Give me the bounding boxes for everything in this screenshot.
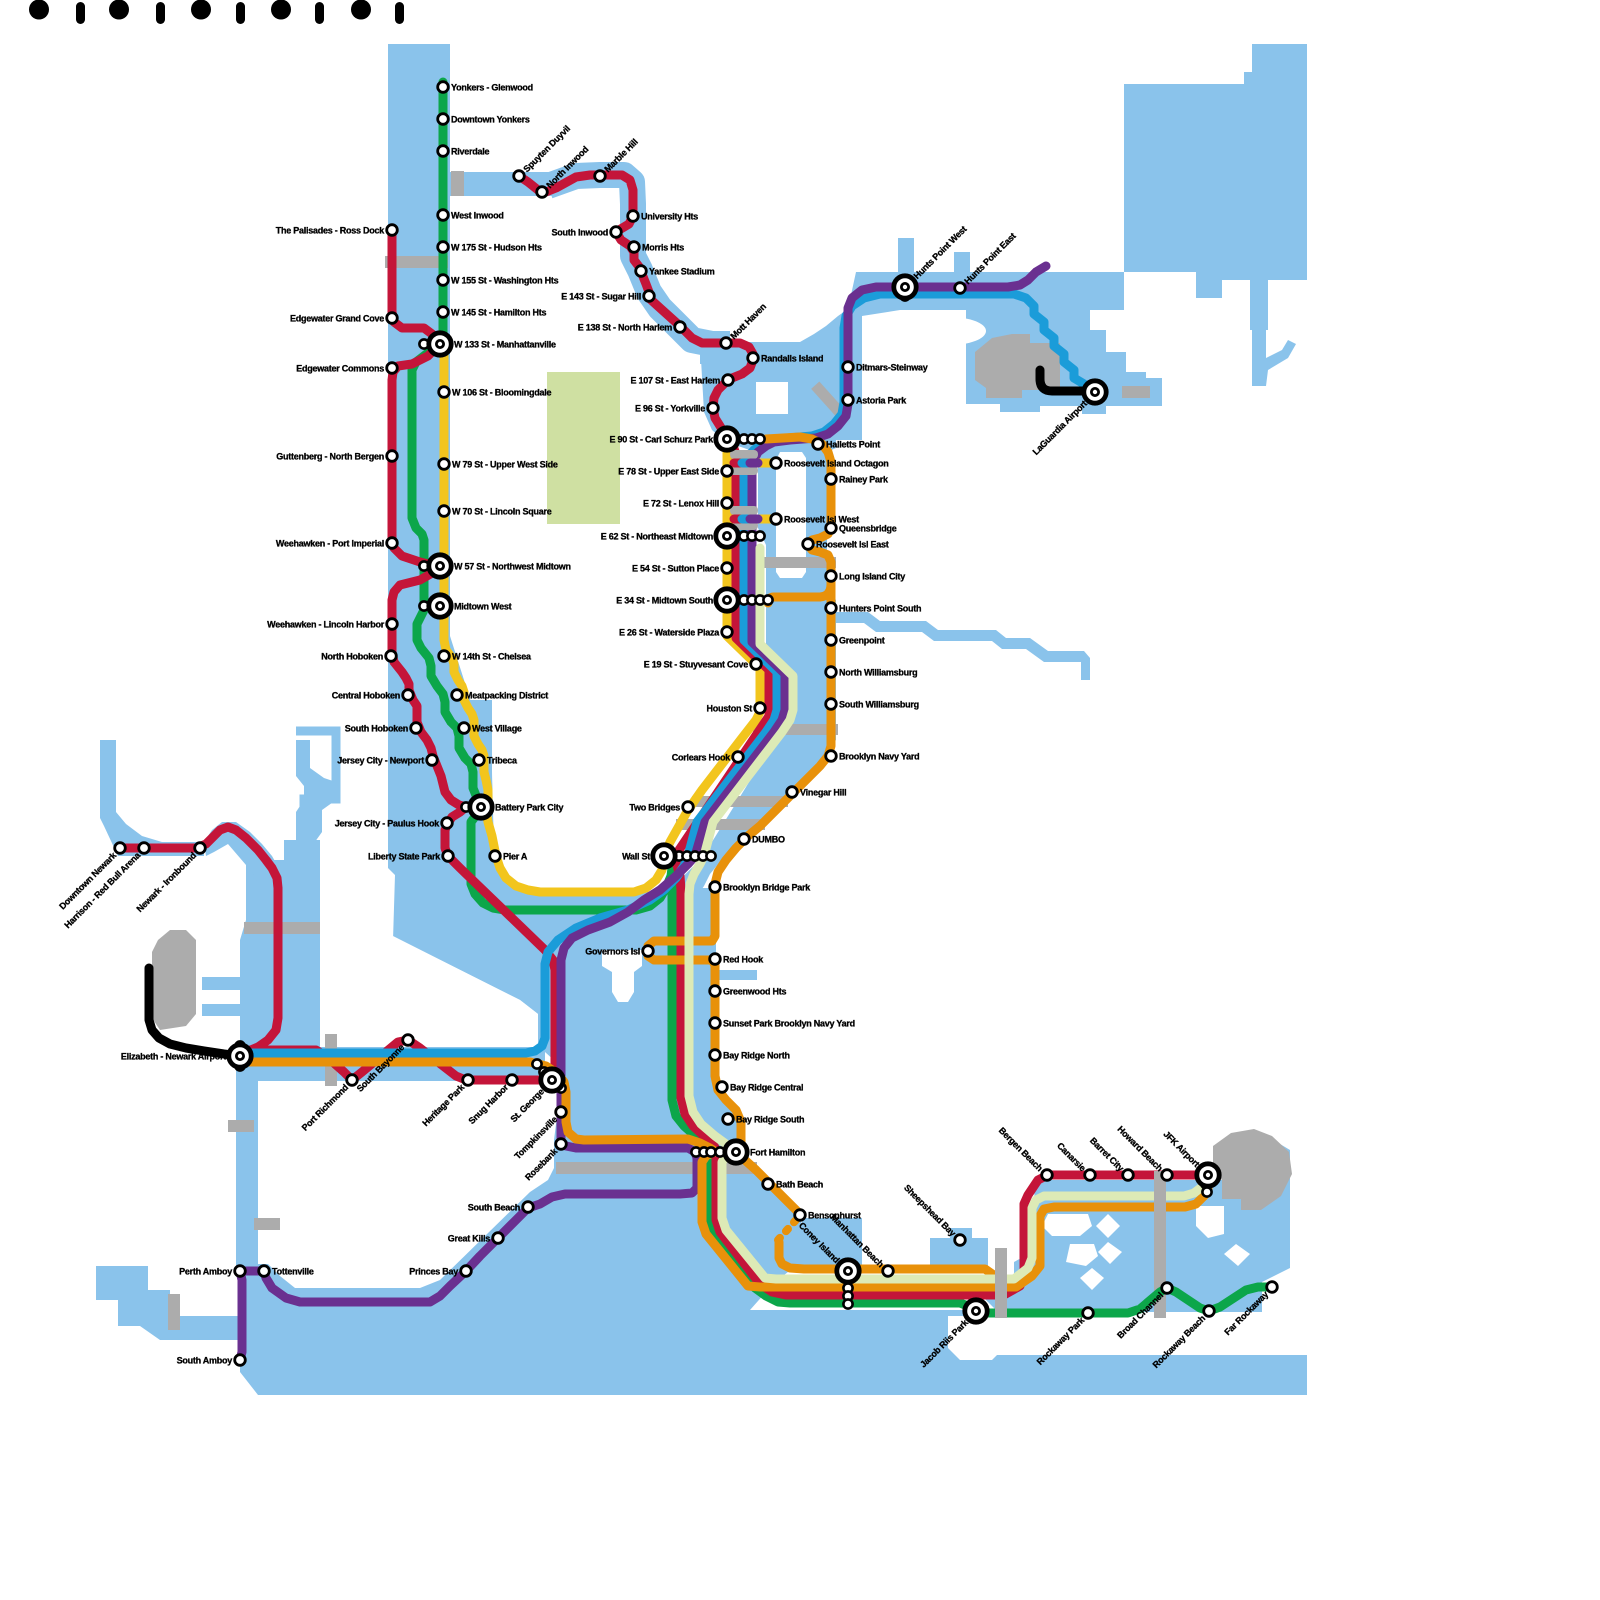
svg-text:Princes Bay: Princes Bay [409,1266,458,1276]
svg-text:W 57 St - Northwest Midtown: W 57 St - Northwest Midtown [454,561,571,571]
svg-text:E 138 St - North Harlem: E 138 St - North Harlem [578,322,673,332]
svg-text:South Williamsburg: South Williamsburg [839,699,919,709]
svg-text:Yankee Stadium: Yankee Stadium [649,266,715,276]
svg-text:W 175 St - Hudson Hts: W 175 St - Hudson Hts [451,242,542,252]
svg-text:W 145 St - Hamilton Hts: W 145 St - Hamilton Hts [451,307,547,317]
svg-text:E 62 St - Northeast Midtown: E 62 St - Northeast Midtown [601,531,713,541]
svg-text:E 90 St - Carl Schurz Park: E 90 St - Carl Schurz Park [609,434,714,444]
svg-text:Liberty State Park: Liberty State Park [368,851,441,861]
svg-text:Sunset Park Brooklyn Navy Yard: Sunset Park Brooklyn Navy Yard [723,1018,855,1028]
svg-text:Greenpoint: Greenpoint [839,635,885,645]
svg-text:Riverdale: Riverdale [451,146,490,156]
svg-text:Central Hoboken: Central Hoboken [332,690,400,700]
svg-text:Long Island City: Long Island City [839,571,905,581]
svg-text:Rainey Park: Rainey Park [839,474,889,484]
svg-text:Battery Park City: Battery Park City [495,802,564,812]
svg-text:Meatpacking District: Meatpacking District [465,690,548,700]
svg-text:E 54 St - Sutton Place: E 54 St - Sutton Place [632,563,719,573]
svg-text:E 26 St - Waterside Plaza: E 26 St - Waterside Plaza [619,627,720,637]
svg-text:Edgewater Grand Cove: Edgewater Grand Cove [290,313,384,323]
svg-text:E 34 St - Midtown South: E 34 St - Midtown South [616,595,713,605]
svg-text:Brooklyn Bridge Park: Brooklyn Bridge Park [723,882,811,892]
svg-text:Bath Beach: Bath Beach [776,1179,823,1189]
svg-text:Queensbridge: Queensbridge [839,523,897,533]
svg-text:Greenwood Hts: Greenwood Hts [723,986,787,996]
svg-text:Roosevelt Isl East: Roosevelt Isl East [816,539,889,549]
svg-text:West Inwood: West Inwood [451,210,504,220]
svg-text:Midtown West: Midtown West [454,601,512,611]
svg-text:W 14th St - Chelsea: W 14th St - Chelsea [452,651,532,661]
svg-text:South Inwood: South Inwood [552,227,608,237]
svg-text:Roosevelt Isl West: Roosevelt Isl West [784,514,859,524]
svg-text:Brooklyn Navy Yard: Brooklyn Navy Yard [839,751,919,761]
svg-text:Perth Amboy: Perth Amboy [179,1266,232,1276]
svg-text:Elizabeth - Newark Airport: Elizabeth - Newark Airport [121,1051,226,1061]
svg-text:Wall St: Wall St [622,851,650,861]
svg-text:W 70 St - Lincoln Square: W 70 St - Lincoln Square [452,506,552,516]
svg-text:Jersey City - Newport: Jersey City - Newport [337,755,424,765]
svg-text:Corlears Hook: Corlears Hook [672,752,732,762]
svg-text:Governors Isl: Governors Isl [585,946,640,956]
svg-text:Pier A: Pier A [503,851,528,861]
svg-text:Bay Ridge South: Bay Ridge South [736,1114,804,1124]
svg-text:The Palisades - Ross Dock: The Palisades - Ross Dock [276,225,386,235]
svg-text:Astoria Park: Astoria Park [856,395,907,405]
svg-text:Hunters Point South: Hunters Point South [839,603,921,613]
svg-text:Tribeca: Tribeca [487,755,518,765]
svg-text:W 79 St - Upper West Side: W 79 St - Upper West Side [452,459,558,469]
svg-text:W 155 St - Washington Hts: W 155 St - Washington Hts [451,275,559,285]
svg-text:Weehawken - Lincoln Harbor: Weehawken - Lincoln Harbor [267,619,385,629]
svg-text:DUMBO: DUMBO [752,834,785,844]
svg-text:Great Kills: Great Kills [448,1233,491,1243]
svg-text:Randalls Island: Randalls Island [761,353,823,363]
svg-text:University Hts: University Hts [641,211,698,221]
svg-text:Bay Ridge Central: Bay Ridge Central [730,1082,803,1092]
svg-text:Jersey City - Paulus Hook: Jersey City - Paulus Hook [335,818,441,828]
svg-text:W 133 St - Manhattanville: W 133 St - Manhattanville [454,339,556,349]
svg-text:Yonkers - Glenwood: Yonkers - Glenwood [451,82,533,92]
svg-text:South Amboy: South Amboy [177,1355,233,1365]
svg-text:Edgewater Commons: Edgewater Commons [296,363,384,373]
svg-text:Halletts Point: Halletts Point [826,439,880,449]
svg-text:Ditmars-Steinway: Ditmars-Steinway [856,362,928,372]
svg-text:Vinegar Hill: Vinegar Hill [800,787,846,797]
svg-text:E 96 St - Yorkville: E 96 St - Yorkville [635,403,705,413]
svg-text:E 107 St - East Harlem: E 107 St - East Harlem [630,375,720,385]
svg-text:Fort Hamilton: Fort Hamilton [750,1147,805,1157]
svg-text:W 106 St - Bloomingdale: W 106 St - Bloomingdale [452,387,552,397]
svg-text:Two Bridges: Two Bridges [629,802,680,812]
svg-text:Red Hook: Red Hook [723,954,764,964]
svg-text:North Hoboken: North Hoboken [321,651,383,661]
svg-text:E 19 St - Stuyvesant Cove: E 19 St - Stuyvesant Cove [644,659,749,669]
svg-text:Bay Ridge North: Bay Ridge North [723,1050,790,1060]
svg-text:South Beach: South Beach [468,1202,520,1212]
svg-text:Downtown Yonkers: Downtown Yonkers [451,114,530,124]
svg-text:North Williamsburg: North Williamsburg [839,667,917,677]
svg-text:Weehawken - Port Imperial: Weehawken - Port Imperial [276,538,384,548]
svg-text:E 78 St - Upper East Side: E 78 St - Upper East Side [618,466,719,476]
svg-text:Guttenberg - North Bergen: Guttenberg - North Bergen [276,451,384,461]
svg-text:Tottenville: Tottenville [272,1266,314,1276]
svg-text:Houston St: Houston St [707,703,753,713]
svg-text:Roosevelt Island Octagon: Roosevelt Island Octagon [784,458,889,468]
svg-text:E 72 St - Lenox Hill: E 72 St - Lenox Hill [643,498,719,508]
svg-text:E 143 St - Sugar Hill: E 143 St - Sugar Hill [561,291,641,301]
svg-text:Morris Hts: Morris Hts [642,242,684,252]
svg-text:West Village: West Village [472,723,522,733]
svg-text:South Hoboken: South Hoboken [345,723,408,733]
